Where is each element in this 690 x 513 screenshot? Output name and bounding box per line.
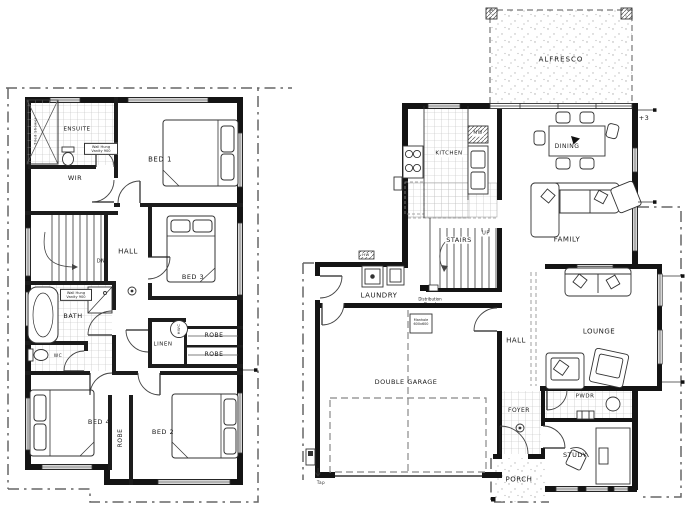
stairs-ground-icon <box>430 218 496 288</box>
hot-water-unit-icon <box>359 251 374 259</box>
wc-toilet-icon <box>28 349 48 361</box>
hot-water-cylinder-icon <box>171 321 188 338</box>
bed1-icon <box>163 120 238 186</box>
alfresco-floor <box>490 10 632 103</box>
stairs-upper-icon <box>44 215 101 281</box>
family-sofa-icon <box>531 180 642 237</box>
manhole-box <box>410 314 432 333</box>
dining-table-icon <box>534 112 620 169</box>
laundry-tub-icon <box>362 266 383 287</box>
foyer-tiles <box>502 391 541 454</box>
floor-plan-drawing <box>0 0 690 513</box>
smoke-alarm-upper-icon <box>128 287 136 295</box>
distribution-board-icon <box>420 285 438 291</box>
upper-floor-plan <box>6 88 292 502</box>
alfresco-post-icon <box>486 8 497 19</box>
bath-corner-shower-icon <box>88 287 112 313</box>
bed3-icon <box>167 216 215 282</box>
porch-post-icon <box>491 497 496 502</box>
bathtub-icon <box>28 287 58 343</box>
porch-floor <box>493 458 545 502</box>
meter-box-icon <box>394 177 402 190</box>
alfresco-post-icon <box>621 8 632 19</box>
washing-machine-icon <box>387 266 404 285</box>
garage-car-spaces <box>330 310 486 472</box>
ground-floor-plan <box>303 8 685 502</box>
cooktop-icon <box>403 146 423 178</box>
oven-tower-icon <box>468 146 488 194</box>
ensuite-toilet-icon <box>62 147 74 166</box>
leader-dot-upper <box>254 368 258 372</box>
garage-meter-box-icon <box>306 449 315 465</box>
lounge-sofa-icon <box>546 268 631 389</box>
hall-opening-dashes <box>531 272 536 386</box>
bed2-icon <box>172 394 238 458</box>
floor-plan-sheet: ENSUITE WIR BED 1 HALL DN BED 3 BATH WC … <box>0 0 690 513</box>
study-desk-icon <box>564 428 630 484</box>
microwave-shelf-icon <box>468 126 488 143</box>
bed4-icon <box>30 390 94 456</box>
